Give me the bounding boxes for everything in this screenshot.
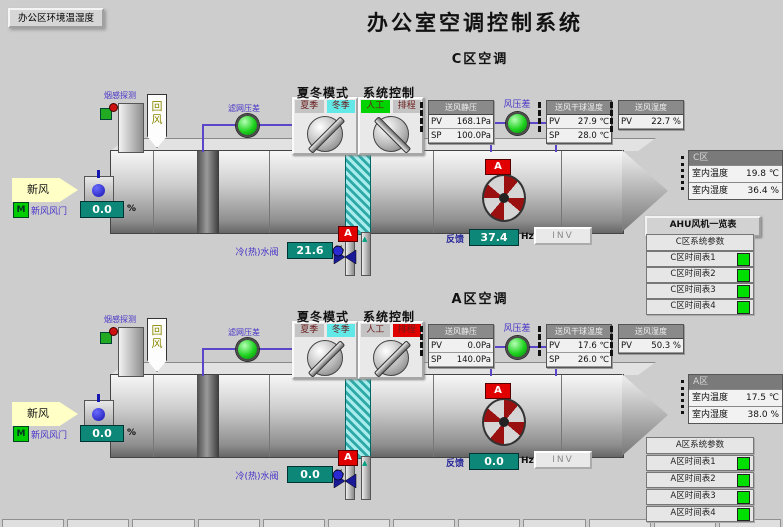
sp-row: SP 140.0Pa xyxy=(429,353,493,367)
bottom-toolbar-button[interactable] xyxy=(263,519,325,527)
fan-dp-label: 风压差 xyxy=(498,321,536,334)
sp-label: SP xyxy=(431,131,442,141)
knob-handle xyxy=(307,340,344,377)
static-pressure-panel: 送风静压 PV 168.1Pa SP 100.0Pa xyxy=(428,100,494,144)
inv-button[interactable]: INV xyxy=(534,227,592,245)
pv-value: 22.7 % xyxy=(651,117,681,127)
panel-title: 送风湿度 xyxy=(619,101,683,115)
room-sensor-probe-icon xyxy=(681,380,684,414)
bottom-toolbar-button[interactable] xyxy=(523,519,585,527)
duct-body: A xyxy=(110,374,624,458)
feedback-unit: Hz xyxy=(521,232,534,242)
supply-humidity-panel: 送风湿度 PV 22.7 % xyxy=(618,100,684,130)
room-temp-label: 室内温度 xyxy=(692,166,728,182)
control-option-schedule[interactable]: 排程 xyxy=(393,324,422,337)
feedback-value: 0.0 xyxy=(469,453,519,470)
mode-option-winter[interactable]: 冬季 xyxy=(327,100,356,113)
schedule-indicator xyxy=(737,253,750,266)
sp-label: SP xyxy=(549,355,560,365)
system-control-knob[interactable] xyxy=(373,340,409,376)
pipe-arrow-up-icon: ▲ xyxy=(362,460,367,467)
mode-option-summer[interactable]: 夏季 xyxy=(295,100,324,113)
valve-value: 0.0 xyxy=(287,466,333,483)
mode-options: 夏季 冬季 xyxy=(295,324,355,337)
valve-alarm-badge: A xyxy=(338,226,358,242)
schedule-label: C区时间表2 xyxy=(670,268,729,281)
schedule-indicator xyxy=(737,474,750,487)
room-humidity-value: 36.4 % xyxy=(748,183,779,199)
smoke-detector-label: 烟感探测 xyxy=(92,90,148,101)
supply-humidity-panel: 送风湿度 PV 50.3 % xyxy=(618,324,684,354)
damper-label: 新风风门 xyxy=(31,428,77,441)
control-option-manual[interactable]: 人工 xyxy=(361,324,390,337)
mode-options: 夏季 冬季 xyxy=(295,100,355,113)
knob-handle xyxy=(373,340,410,377)
damper-unit: % xyxy=(127,428,136,438)
sp-value: 26.0 ℃ xyxy=(578,355,609,365)
sp-row: SP 26.0 ℃ xyxy=(547,353,611,367)
room-panel-title: C区 xyxy=(689,151,782,165)
fan-dp-led xyxy=(506,112,529,135)
duct-divider xyxy=(433,151,434,233)
valve-icon[interactable] xyxy=(330,468,364,492)
bottom-toolbar-button[interactable] xyxy=(589,519,651,527)
panel-title: 送风静压 xyxy=(429,325,493,339)
room-temp-row: 室内温度 19.8 ℃ xyxy=(689,165,782,182)
damper-m-badge: M xyxy=(13,426,29,442)
smoke-detector-lamp xyxy=(109,327,118,336)
fresh-air-arrow: 新风 xyxy=(12,402,78,426)
schedule-label: C区时间表1 xyxy=(670,252,729,265)
schedule-indicator xyxy=(737,285,750,298)
mode-knob[interactable] xyxy=(307,340,343,376)
room-humidity-row: 室内湿度 38.0 % xyxy=(689,406,782,423)
bottom-toolbar-button[interactable] xyxy=(328,519,390,527)
duct-divider xyxy=(153,375,154,457)
duct-divider xyxy=(153,151,154,233)
duct-divider xyxy=(269,375,270,457)
supply-temp-panel: 送风干球温度 PV 17.6 ℃ SP 26.0 ℃ xyxy=(546,324,612,368)
fan-alarm-badge: A xyxy=(485,159,511,175)
smoke-detector-icon xyxy=(100,103,118,120)
system-control-options: 人工 排程 xyxy=(361,324,421,337)
pv-label: PV xyxy=(549,341,560,351)
damper-actuator-icon xyxy=(92,184,105,197)
room-panel: C区 室内温度 19.8 ℃ 室内湿度 36.4 % xyxy=(688,150,783,200)
smoke-detector-icon xyxy=(100,327,118,344)
schedule-indicator xyxy=(737,457,750,470)
schedule-label: A区时间表4 xyxy=(670,507,729,520)
mode-option-winter[interactable]: 冬季 xyxy=(327,324,356,337)
control-option-schedule[interactable]: 排程 xyxy=(393,100,422,113)
fan-dp-label: 风压差 xyxy=(498,97,536,110)
pv-row: PV 22.7 % xyxy=(619,115,683,129)
damper-stem xyxy=(97,170,100,178)
return-air-inlet xyxy=(118,103,144,153)
zone-c-subtitle: C区空调 xyxy=(350,48,610,67)
zone-a-schedule-2-button[interactable]: A区时间表2 xyxy=(646,472,754,488)
sp-label: SP xyxy=(431,355,442,365)
panel-title: 送风静压 xyxy=(429,101,493,115)
mode-panel-title: 夏冬模式 xyxy=(292,84,354,101)
feedback-label: 反馈 xyxy=(443,456,467,469)
smoke-detector-label: 烟感探测 xyxy=(92,314,148,325)
fan-alarm-badge: A xyxy=(485,383,511,399)
sensor-probe-icon xyxy=(610,326,613,356)
pv-row: PV 168.1Pa xyxy=(429,115,493,129)
smoke-detector-lamp xyxy=(109,103,118,112)
schedule-indicator xyxy=(737,491,750,504)
duct-damper-section xyxy=(197,151,219,233)
panel-title: 送风湿度 xyxy=(619,325,683,339)
sp-value: 28.0 ℃ xyxy=(578,131,609,141)
filter-dp-label: 滤网压差 xyxy=(214,327,274,338)
mode-knob[interactable] xyxy=(307,116,343,152)
zone-a-schedule-1-button[interactable]: A区时间表1 xyxy=(646,455,754,471)
cooling-coil xyxy=(345,371,371,459)
return-air-inlet xyxy=(118,327,144,377)
duct-damper-section xyxy=(197,375,219,457)
pv-label: PV xyxy=(621,117,632,127)
pv-value: 17.6 ℃ xyxy=(578,341,609,351)
mode-panel-title: 夏冬模式 xyxy=(292,308,354,325)
damper-stem xyxy=(97,394,100,402)
room-humidity-row: 室内湿度 36.4 % xyxy=(689,182,782,199)
zone-c-params-button[interactable]: C区系统参数 xyxy=(646,234,754,251)
room-sensor-probe-icon xyxy=(681,156,684,190)
pv-row: PV 0.0Pa xyxy=(429,339,493,353)
pv-label: PV xyxy=(431,117,442,127)
mode-option-summer[interactable]: 夏季 xyxy=(295,324,324,337)
feedback-unit: Hz xyxy=(521,456,534,466)
duct-divider xyxy=(269,151,270,233)
damper-value: 0.0 xyxy=(80,425,124,442)
pipe-arrow-up-icon: ▲ xyxy=(362,236,367,243)
system-control-options: 人工 排程 xyxy=(361,100,421,113)
feedback-value: 37.4 xyxy=(469,229,519,246)
system-control-title: 系统控制 xyxy=(358,84,420,101)
zone-a-params-button[interactable]: A区系统参数 xyxy=(646,437,754,454)
schedule-indicator xyxy=(737,269,750,282)
zone-c-schedule-3-button[interactable]: C区时间表3 xyxy=(646,283,754,299)
pv-label: PV xyxy=(549,117,560,127)
sensor-probe-icon xyxy=(420,102,423,132)
system-control-title: 系统控制 xyxy=(358,308,420,325)
mode-panel: 夏季 冬季 xyxy=(292,321,358,379)
bottom-toolbar-button[interactable] xyxy=(393,519,455,527)
room-temp-value: 17.5 ℃ xyxy=(746,390,779,406)
zone-a-schedule-4-button[interactable]: A区时间表4 xyxy=(646,506,754,522)
filter-dp-led xyxy=(236,114,259,137)
schedule-label: C区时间表4 xyxy=(670,300,729,313)
fan-icon xyxy=(482,174,526,222)
sp-value: 100.0Pa xyxy=(457,131,491,141)
pv-value: 27.9 ℃ xyxy=(578,117,609,127)
sensor-probe-icon xyxy=(610,102,613,132)
schedule-indicator xyxy=(737,508,750,521)
pv-value: 0.0Pa xyxy=(468,341,491,351)
duct-divider xyxy=(561,375,562,457)
static-pressure-panel: 送风静压 PV 0.0Pa SP 140.0Pa xyxy=(428,324,494,368)
cooling-coil xyxy=(345,147,371,235)
env-temp-humidity-button[interactable]: 办公区环境温湿度 xyxy=(8,8,104,28)
fresh-air-arrow: 新风 xyxy=(12,178,78,202)
inv-button[interactable]: INV xyxy=(534,451,592,469)
schedule-label: C区时间表3 xyxy=(670,284,729,297)
system-control-panel: 人工 排程 xyxy=(358,97,424,155)
room-panel: A区 室内温度 17.5 ℃ 室内湿度 38.0 % xyxy=(688,374,783,424)
room-humidity-label: 室内湿度 xyxy=(692,183,728,199)
pv-row: PV 27.9 ℃ xyxy=(547,115,611,129)
schedule-indicator xyxy=(737,301,750,314)
filter-dp-led xyxy=(236,338,259,361)
sp-value: 140.0Pa xyxy=(457,355,491,365)
bottom-toolbar-button[interactable] xyxy=(458,519,520,527)
pv-label: PV xyxy=(431,341,442,351)
filter-dp-label: 滤网压差 xyxy=(214,103,274,114)
damper-m-badge: M xyxy=(13,202,29,218)
system-control-knob[interactable] xyxy=(373,116,409,152)
sp-row: SP 100.0Pa xyxy=(429,129,493,143)
fan-dp-led xyxy=(506,336,529,359)
damper-unit: % xyxy=(127,204,136,214)
valve-alarm-badge: A xyxy=(338,450,358,466)
pv-value: 168.1Pa xyxy=(457,117,491,127)
fan-icon xyxy=(482,398,526,446)
room-temp-row: 室内温度 17.5 ℃ xyxy=(689,389,782,406)
schedule-label: A区时间表2 xyxy=(670,473,729,486)
sensor-probe-icon xyxy=(420,326,423,356)
duct-divider xyxy=(433,375,434,457)
panel-title: 送风干球温度 xyxy=(547,325,611,339)
bottom-toolbar-button[interactable] xyxy=(198,519,260,527)
room-temp-label: 室内温度 xyxy=(692,390,728,406)
zone-a-subtitle: A区空调 xyxy=(350,288,610,307)
room-humidity-label: 室内湿度 xyxy=(692,407,728,423)
bottom-toolbar-button[interactable] xyxy=(2,519,64,527)
valve-label: 冷(热)水阀 xyxy=(230,245,284,258)
fan-hub xyxy=(499,193,509,203)
pv-value: 50.3 % xyxy=(651,341,681,351)
sensor-probe-icon xyxy=(538,326,541,356)
sp-row: SP 28.0 ℃ xyxy=(547,129,611,143)
valve-label: 冷(热)水阀 xyxy=(230,469,284,482)
pv-row: PV 17.6 ℃ xyxy=(547,339,611,353)
room-humidity-value: 38.0 % xyxy=(748,407,779,423)
bottom-toolbar-button[interactable] xyxy=(67,519,129,527)
pv-label: PV xyxy=(621,341,632,351)
zone-c-schedule-2-button[interactable]: C区时间表2 xyxy=(646,267,754,283)
damper-label: 新风风门 xyxy=(31,204,77,217)
mode-panel: 夏季 冬季 xyxy=(292,97,358,155)
fan-hub xyxy=(499,417,509,427)
zone-c-schedule-4-button[interactable]: C区时间表4 xyxy=(646,299,754,315)
supply-temp-panel: 送风干球温度 PV 27.9 ℃ SP 28.0 ℃ xyxy=(546,100,612,144)
duct-body: A xyxy=(110,150,624,234)
sp-label: SP xyxy=(549,131,560,141)
control-option-manual[interactable]: 人工 xyxy=(361,100,390,113)
bottom-toolbar-button[interactable] xyxy=(132,519,194,527)
feedback-label: 反馈 xyxy=(443,232,467,245)
schedule-label: A区时间表1 xyxy=(670,456,729,469)
pv-row: PV 50.3 % xyxy=(619,339,683,353)
panel-title: 送风干球温度 xyxy=(547,101,611,115)
knob-handle xyxy=(307,116,344,153)
zone-a-schedule-3-button[interactable]: A区时间表3 xyxy=(646,489,754,505)
damper-value: 0.0 xyxy=(80,201,124,218)
valve-value: 21.6 xyxy=(287,242,333,259)
room-panel-title: A区 xyxy=(689,375,782,389)
sensor-probe-icon xyxy=(538,102,541,132)
system-control-panel: 人工 排程 xyxy=(358,321,424,379)
valve-icon[interactable] xyxy=(330,244,364,268)
zone-c-schedule-1-button[interactable]: C区时间表1 xyxy=(646,251,754,267)
duct-divider xyxy=(561,151,562,233)
damper-actuator-icon xyxy=(92,408,105,421)
schedule-label: A区时间表3 xyxy=(670,490,729,503)
page-title: 办公室空调控制系统 xyxy=(170,7,780,37)
knob-handle xyxy=(373,116,410,153)
room-temp-value: 19.8 ℃ xyxy=(746,166,779,182)
